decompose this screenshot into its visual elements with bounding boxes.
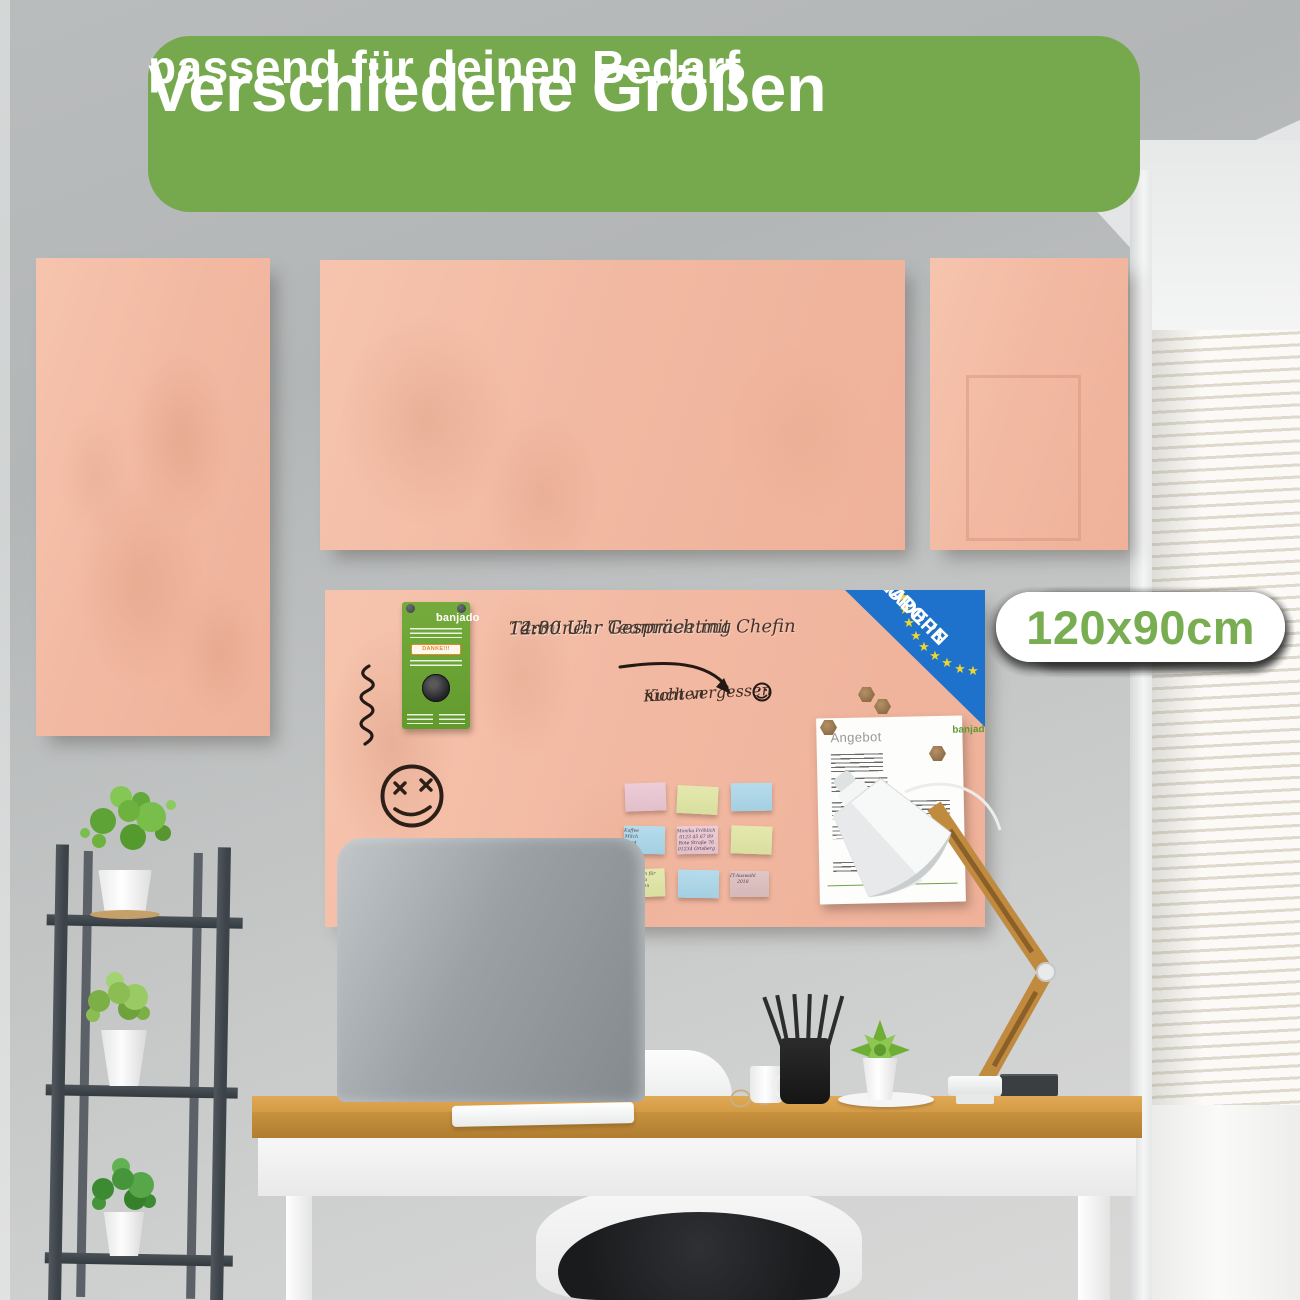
- window-curtain: [1150, 1105, 1300, 1300]
- document-textblock: [857, 842, 927, 855]
- sticky-note: [676, 785, 718, 815]
- potted-plant: [112, 1168, 134, 1190]
- glassboard-wide: [320, 260, 905, 550]
- window-blinds: [1150, 330, 1300, 1110]
- monitor: [337, 838, 645, 1102]
- document-textblock: [831, 753, 883, 772]
- desk-leg: [286, 1196, 312, 1300]
- shelf-board: [45, 1252, 233, 1266]
- sticky-note-text: IT-Auswahl 2018: [730, 871, 756, 886]
- shelf-rail: [48, 844, 69, 1300]
- document-title: Angebot: [830, 729, 882, 745]
- arrow-doodle: [620, 664, 731, 694]
- keyboard: [452, 1102, 634, 1127]
- document-footer: [828, 883, 958, 898]
- sticky-note-text: Monika Fröhlich 0123 45 67 89 Rote Straß…: [677, 826, 716, 854]
- promo-image: banjado® DANKE!!! Termine: 12:30 Uhr Tea…: [0, 0, 1300, 1300]
- chair-cushion: [558, 1212, 840, 1300]
- coffee-mug: [750, 1066, 784, 1103]
- banner-subtitle: passend für deinen Bedarf: [148, 36, 741, 98]
- smiley-doodle: [383, 767, 442, 826]
- desk-apron: [258, 1138, 1136, 1196]
- desk-leg: [1078, 1196, 1110, 1300]
- potted-plant: [118, 800, 140, 822]
- size-badge: 120x90cm: [996, 592, 1285, 662]
- glassboard-small: [930, 258, 1128, 550]
- squiggle-doodle: [361, 666, 373, 744]
- shelf-board: [46, 1084, 238, 1098]
- document-textblock: [832, 824, 944, 839]
- pen-cup: [780, 1038, 830, 1104]
- document-textblock: [833, 861, 893, 874]
- sticky-note: IT-Auswahl 2018: [730, 871, 769, 897]
- potted-plant: [108, 982, 130, 1004]
- plant-saucer: [90, 910, 160, 919]
- sticky-note: [731, 825, 773, 854]
- sticky-note: [678, 870, 719, 899]
- shelf-rail: [210, 847, 231, 1300]
- angebot-document: Angebot banjado: [816, 715, 966, 904]
- title-banner: Verschiedene Größen passend für deinen B…: [148, 36, 1140, 212]
- lamp-base: [948, 1076, 1002, 1096]
- sticky-note: [731, 783, 772, 812]
- sticky-note: Monika Fröhlich 0123 45 67 89 Rote Straß…: [677, 826, 718, 855]
- document-textblock: [831, 777, 887, 792]
- desk-edge: [252, 1112, 1142, 1138]
- notebook: [1000, 1076, 1058, 1096]
- glassboard-portrait: [36, 258, 270, 736]
- chair-seat-shell: [536, 1182, 862, 1300]
- small-smiley-doodle: [754, 684, 771, 701]
- sticky-note: [625, 782, 667, 811]
- window-top: [1132, 140, 1300, 350]
- document-textblock: [832, 800, 950, 819]
